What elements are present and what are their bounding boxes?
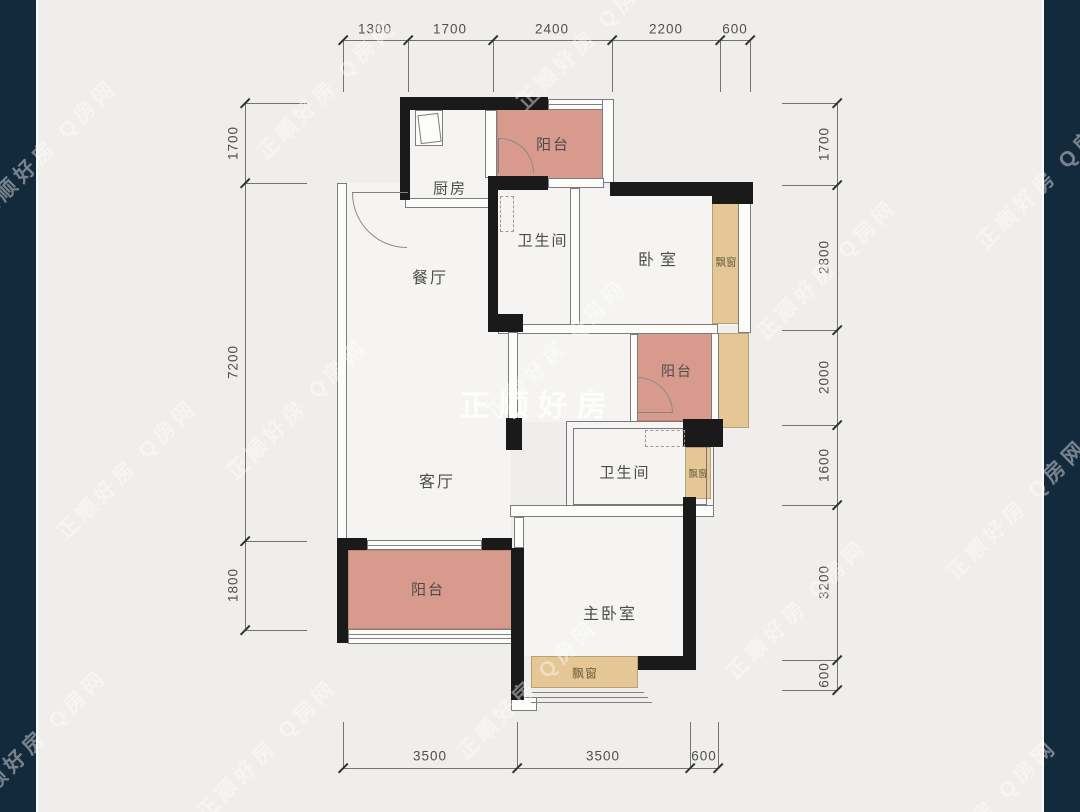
- bay-window-bedroom-label: 飘窗: [716, 255, 737, 270]
- balcony-mid-right-wall: [711, 333, 719, 428]
- sliding-door-right-jamb: [482, 538, 512, 550]
- bath-top-left-wall: [488, 190, 498, 332]
- dim-witness: [245, 630, 307, 631]
- dim-witness: [343, 40, 344, 92]
- brand-watermark: 正顺好房: [460, 381, 616, 425]
- bay-sill-line: [531, 702, 652, 703]
- balcony-top-bottom-wall: [488, 176, 548, 190]
- dim-witness: [782, 103, 838, 104]
- kitchen-left-wall: [400, 97, 410, 200]
- balcony-bottom-window: [348, 629, 512, 644]
- dim-top-4: 2200: [649, 22, 683, 37]
- dim-witness: [408, 40, 409, 92]
- master-left-wall-upper: [514, 517, 524, 548]
- dim-bottom-2: 3500: [586, 749, 620, 764]
- tile-watermark: 正顺好房 Q房网: [909, 731, 1063, 812]
- living-label: 客厅: [419, 468, 455, 492]
- sliding-door-line: [368, 545, 481, 546]
- dim-witness: [245, 541, 307, 542]
- dim-witness: [782, 185, 838, 186]
- dining-label: 餐厅: [412, 264, 448, 288]
- dim-witness: [493, 40, 494, 92]
- dim-top-2: 1700: [433, 22, 467, 37]
- dim-bottom-3: 600: [691, 749, 717, 764]
- bay-window-bottom-label: 飘窗: [572, 665, 598, 682]
- dim-top-1: 1300: [358, 22, 392, 37]
- balcony-top-bottom-window: [548, 178, 604, 188]
- left-border-bar: [0, 0, 36, 812]
- dim-witness: [782, 690, 838, 691]
- dim-witness: [343, 722, 344, 768]
- dim-witness: [782, 660, 838, 661]
- dim-bottom-1: 3500: [413, 749, 447, 764]
- bath-top-label: 卫生间: [517, 230, 568, 251]
- master-floor: [524, 517, 683, 656]
- kitchen-label: 厨房: [433, 178, 467, 199]
- right-border-bar: [1044, 0, 1080, 812]
- bay-sill-line: [531, 697, 648, 698]
- master-right-wall: [683, 497, 696, 670]
- right-exterior-wall-top: [738, 196, 751, 333]
- balcony-top-right-wall: [602, 99, 614, 183]
- kitchen-top-wall: [400, 97, 548, 110]
- sliding-door-left-jamb: [337, 538, 367, 550]
- kitchen-bottom-wall: [405, 198, 491, 208]
- left-separator: [36, 0, 38, 812]
- kitchen-sink-basin: [417, 113, 441, 144]
- balcony-top-label: 阳台: [536, 134, 570, 155]
- dim-right-4: 1600: [817, 448, 832, 482]
- bay-window-mid-label: 飘窗: [688, 466, 707, 480]
- balcony-bottom-left-wall: [337, 538, 348, 643]
- dim-witness: [782, 330, 838, 331]
- dim-line-bottom: [343, 768, 718, 769]
- left-exterior-wall: [337, 183, 347, 541]
- dim-left-2: 7200: [226, 345, 241, 379]
- bath-top-duct-dashed: [500, 196, 514, 232]
- balcony-mid-label: 阳台: [661, 361, 693, 381]
- bath-mid-duct-dashed: [645, 430, 685, 447]
- dim-witness: [245, 183, 307, 184]
- dim-witness: [720, 40, 721, 92]
- dim-top-5: 600: [722, 22, 748, 37]
- dim-right-6: 600: [817, 662, 832, 688]
- dim-right-2: 2800: [817, 240, 832, 274]
- right-separator: [1042, 0, 1044, 812]
- dim-witness: [517, 722, 518, 768]
- bath-top-foot-wall: [488, 314, 523, 332]
- bedroom-top-wall: [610, 182, 753, 196]
- balcony-bottom-label: 阳台: [411, 579, 445, 600]
- dim-witness: [718, 722, 719, 768]
- dim-right-5: 3200: [817, 565, 832, 599]
- tile-watermark: 正顺好房 Q房网: [719, 531, 873, 685]
- bedroom-corner-wall: [712, 196, 753, 204]
- master-left-wall-lower: [511, 548, 524, 700]
- dim-left-1: 1700: [226, 126, 241, 160]
- window-line: [349, 634, 511, 635]
- dim-witness: [612, 40, 613, 92]
- dim-witness: [782, 505, 838, 506]
- entry-door-leaf: [352, 192, 408, 194]
- master-bottom-wall: [638, 656, 696, 670]
- bay-sill-line: [531, 692, 644, 693]
- floor-plan-image: 厨房 阳台 卫生间 卧室 飘窗 餐厅 客厅 阳台 飘窗 卫生间 阳台 主卧室 飘…: [0, 0, 1080, 812]
- dim-left-3: 1800: [226, 568, 241, 602]
- dim-line-right: [837, 103, 838, 690]
- mid-right-block-wall: [683, 419, 723, 447]
- balcony-mid-door-leaf: [637, 412, 673, 414]
- dim-right-1: 1700: [817, 127, 832, 161]
- balcony-top-door-leaf: [498, 138, 500, 173]
- bath-mid-label: 卫生间: [599, 462, 650, 483]
- dim-top-3: 2400: [535, 22, 569, 37]
- dim-witness: [245, 103, 307, 104]
- bath-top-right-wall: [570, 188, 580, 333]
- tile-watermark: 正顺好房 Q房网: [189, 671, 343, 812]
- window-line: [349, 638, 511, 639]
- bedroom-label: 卧室: [638, 246, 682, 270]
- kitchen-balcony-divider: [485, 110, 497, 178]
- tile-watermark: 正顺好房 Q房网: [49, 391, 203, 545]
- bedroom-bottom-wall: [498, 324, 718, 334]
- side-bay-strip-zone: [717, 333, 749, 428]
- dim-line-top: [343, 40, 750, 41]
- dim-right-3: 2000: [817, 360, 832, 394]
- dim-witness: [750, 40, 751, 92]
- master-bedroom-label: 主卧室: [583, 600, 637, 624]
- dim-witness: [782, 425, 838, 426]
- bath-bedroom-floor: [498, 188, 738, 326]
- window-line: [549, 104, 609, 105]
